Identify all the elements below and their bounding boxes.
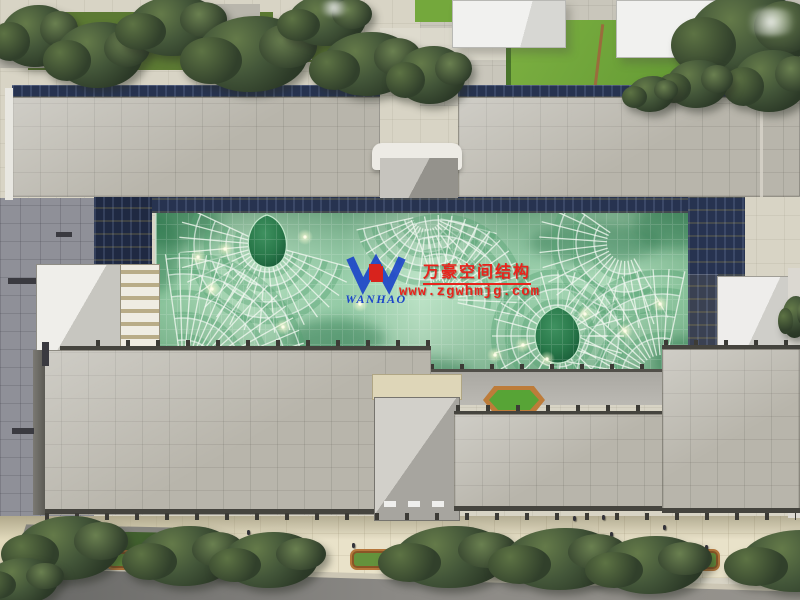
- entrance-west: [36, 264, 122, 352]
- tree: [733, 50, 800, 112]
- tree: [782, 296, 800, 338]
- smoke-puff: [740, 8, 800, 36]
- building-northwest-edge: [5, 88, 13, 200]
- watermark: WANHAO 万豪空间结构 www.zgwhmjg.com: [335, 248, 625, 318]
- watermark-website: www.zgwhmjg.com: [399, 284, 540, 300]
- building-east-roof: [662, 349, 800, 510]
- tree: [600, 536, 704, 594]
- tree: [0, 558, 58, 600]
- glazed-wall-east: [688, 196, 745, 276]
- building-southeast-roof: [454, 414, 664, 510]
- pedestrian: [573, 516, 576, 521]
- pedestrian: [663, 525, 666, 530]
- terrace-south: [428, 370, 696, 405]
- corridor-north: [380, 158, 458, 198]
- street-furniture: [56, 232, 72, 237]
- logo-text: WANHAO: [345, 292, 406, 306]
- terrace-edge: [428, 369, 696, 372]
- glazed-band-atrium: [140, 196, 745, 213]
- building-northwest-roof: [12, 97, 380, 197]
- connector-south-vents: [384, 501, 448, 507]
- watermark-company-name: 万豪空间结构: [423, 258, 531, 285]
- glazed-wall-west: [94, 196, 152, 274]
- tree: [628, 76, 674, 112]
- grass-patch: [415, 0, 455, 22]
- street-furniture: [42, 342, 49, 366]
- tree: [222, 532, 318, 588]
- street-furniture: [8, 278, 36, 284]
- building-northeast-seam: [760, 97, 763, 197]
- building-southeast-beam-bottom: [454, 506, 664, 511]
- building-northeast-roof: [458, 97, 800, 197]
- white-building-north: [452, 0, 566, 48]
- building-southwest-edge: [33, 350, 45, 515]
- pedestrian: [602, 515, 605, 520]
- pedestrian: [352, 543, 355, 548]
- aerial-rendering: WANHAO 万豪空间结构 www.zgwhmjg.com: [0, 0, 800, 600]
- street-furniture: [12, 428, 34, 434]
- smoke-puff: [316, 0, 352, 16]
- building-south-ticks-bottom: [45, 513, 796, 520]
- tree: [396, 46, 466, 104]
